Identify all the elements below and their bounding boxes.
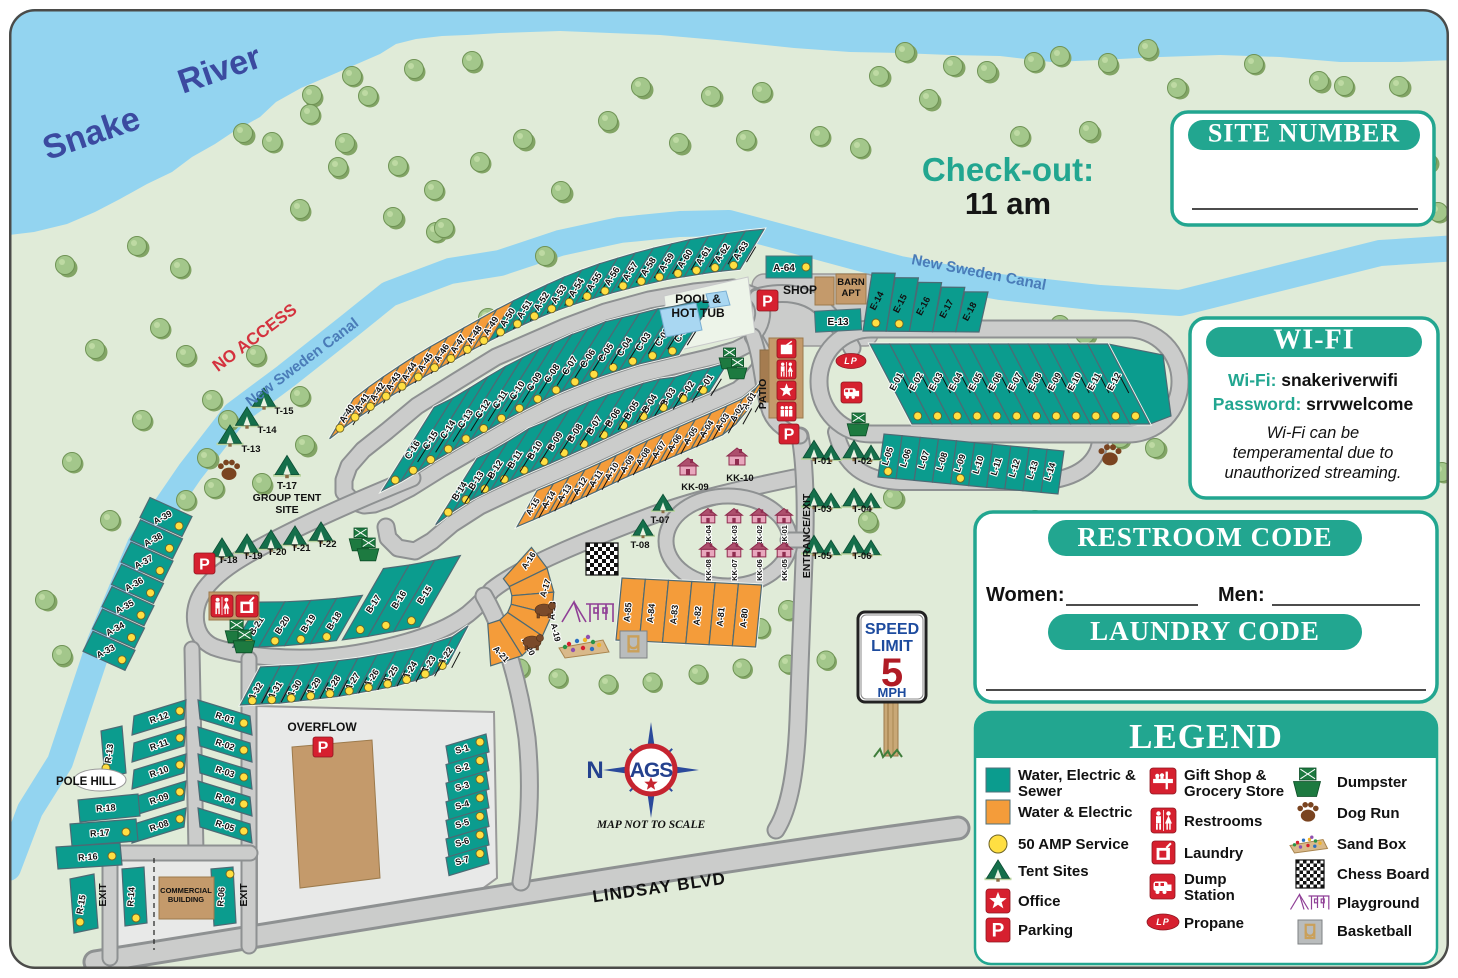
svg-text:R-14: R-14 — [125, 887, 136, 907]
svg-text:OVERFLOW: OVERFLOW — [287, 720, 357, 734]
svg-text:A-85: A-85 — [622, 602, 634, 622]
svg-text:R-06: R-06 — [215, 887, 226, 907]
svg-text:T-21: T-21 — [291, 543, 311, 554]
svg-text:R-17: R-17 — [90, 827, 110, 838]
svg-text:Men:: Men: — [1218, 584, 1265, 606]
svg-text:SHOP: SHOP — [783, 283, 817, 297]
svg-text:POOL &: POOL & — [675, 292, 721, 306]
svg-text:T-20: T-20 — [267, 547, 286, 558]
svg-text:50 AMP Service: 50 AMP Service — [1018, 836, 1129, 853]
svg-text:Parking: Parking — [1018, 922, 1073, 939]
svg-text:BUILDING: BUILDING — [168, 895, 204, 904]
svg-text:N: N — [586, 757, 603, 784]
svg-text:SITE NUMBER: SITE NUMBER — [1208, 119, 1400, 148]
svg-text:KK-08: KK-08 — [704, 559, 713, 581]
svg-text:Password: srrvwelcome: Password: srrvwelcome — [1213, 394, 1414, 414]
svg-text:LAUNDRY CODE: LAUNDRY CODE — [1090, 616, 1320, 646]
svg-text:A-84: A-84 — [645, 603, 657, 623]
svg-text:E-13: E-13 — [827, 317, 849, 328]
svg-text:COMMERCIAL: COMMERCIAL — [160, 886, 212, 895]
svg-text:MAP NOT TO SCALE: MAP NOT TO SCALE — [596, 819, 706, 831]
svg-text:A-83: A-83 — [668, 604, 680, 624]
svg-text:Dump: Dump — [1184, 871, 1227, 888]
svg-text:T-01: T-01 — [812, 456, 832, 467]
svg-text:Wi-Fi: snakeriverwifi: Wi-Fi: snakeriverwifi — [1228, 370, 1398, 390]
svg-text:ENTRANCE/EXIT: ENTRANCE/EXIT — [801, 493, 813, 578]
svg-text:Basketball: Basketball — [1337, 923, 1412, 940]
svg-text:Chess Board: Chess Board — [1337, 866, 1430, 883]
svg-text:MPH: MPH — [878, 685, 907, 700]
svg-text:KK-09: KK-09 — [681, 482, 708, 493]
svg-text:Sewer: Sewer — [1018, 783, 1062, 800]
svg-text:T-17: T-17 — [277, 481, 297, 492]
svg-text:A-64: A-64 — [773, 263, 795, 274]
svg-text:Gift Shop &: Gift Shop & — [1184, 767, 1267, 784]
svg-text:P: P — [784, 427, 795, 444]
svg-text:KK-06: KK-06 — [755, 559, 764, 581]
svg-text:T-07: T-07 — [650, 515, 669, 526]
svg-text:BARN: BARN — [837, 277, 865, 288]
svg-text:SITE: SITE — [275, 504, 298, 516]
svg-text:Office: Office — [1018, 893, 1061, 910]
svg-text:LP: LP — [1156, 917, 1170, 927]
svg-text:T-14: T-14 — [257, 425, 277, 436]
svg-text:Dog Run: Dog Run — [1337, 805, 1399, 822]
svg-text:T-06: T-06 — [852, 551, 871, 562]
svg-text:T-03: T-03 — [812, 504, 831, 515]
svg-text:11 am: 11 am — [965, 186, 1051, 221]
svg-text:P: P — [992, 921, 1005, 942]
svg-text:T-22: T-22 — [317, 539, 336, 550]
svg-text:Restrooms: Restrooms — [1184, 813, 1262, 830]
svg-text:Playground: Playground — [1337, 895, 1420, 912]
svg-text:unauthorized streaming.: unauthorized streaming. — [1224, 464, 1401, 482]
svg-text:Check-out:: Check-out: — [922, 151, 1094, 188]
svg-text:SPEED: SPEED — [865, 621, 919, 638]
svg-text:Sand Box: Sand Box — [1337, 836, 1407, 853]
svg-text:A-81: A-81 — [715, 607, 727, 627]
svg-text:Laundry: Laundry — [1184, 845, 1244, 862]
svg-text:APT: APT — [842, 288, 861, 299]
svg-text:KK-07: KK-07 — [730, 559, 739, 581]
svg-text:POLE HILL: POLE HILL — [56, 776, 116, 788]
svg-text:EXIT: EXIT — [97, 883, 109, 907]
svg-text:T-02: T-02 — [852, 456, 871, 467]
svg-text:Dumpster: Dumpster — [1337, 774, 1407, 791]
svg-text:Water & Electric: Water & Electric — [1018, 804, 1133, 821]
svg-text:T-08: T-08 — [630, 540, 649, 551]
svg-text:EXIT: EXIT — [238, 883, 250, 907]
svg-text:Grocery Store: Grocery Store — [1184, 783, 1284, 800]
svg-text:KK-10: KK-10 — [726, 473, 753, 484]
svg-text:P: P — [199, 556, 210, 573]
svg-text:A-80: A-80 — [738, 608, 750, 628]
svg-text:T-15: T-15 — [274, 406, 294, 417]
svg-text:Tent Sites: Tent Sites — [1018, 863, 1089, 880]
svg-text:WI-FI: WI-FI — [1273, 325, 1354, 356]
svg-text:LP: LP — [844, 356, 858, 366]
svg-text:T-19: T-19 — [243, 551, 262, 562]
svg-text:R-18: R-18 — [96, 802, 116, 813]
svg-text:T-18: T-18 — [218, 555, 237, 566]
svg-text:T-05: T-05 — [812, 551, 832, 562]
svg-text:Water, Electric &: Water, Electric & — [1018, 767, 1136, 784]
svg-text:P: P — [318, 740, 329, 757]
svg-text:Women:: Women: — [986, 584, 1065, 606]
svg-text:T-04: T-04 — [852, 504, 872, 515]
svg-text:temperamental due to: temperamental due to — [1233, 444, 1394, 462]
svg-text:Propane: Propane — [1184, 915, 1244, 932]
svg-text:PATIO: PATIO — [757, 379, 769, 410]
svg-text:R-16: R-16 — [78, 851, 98, 862]
svg-text:Station: Station — [1184, 887, 1235, 904]
svg-text:LEGEND: LEGEND — [1129, 717, 1283, 756]
svg-text:T-13: T-13 — [241, 444, 260, 455]
svg-text:GROUP TENT: GROUP TENT — [253, 492, 322, 504]
svg-text:P: P — [762, 293, 773, 310]
svg-text:HOT TUB: HOT TUB — [671, 306, 725, 320]
svg-text:KK-05: KK-05 — [780, 559, 789, 581]
svg-text:Wi-Fi can be: Wi-Fi can be — [1267, 424, 1359, 442]
svg-text:RESTROOM CODE: RESTROOM CODE — [1077, 522, 1332, 552]
svg-text:A-82: A-82 — [691, 606, 703, 626]
